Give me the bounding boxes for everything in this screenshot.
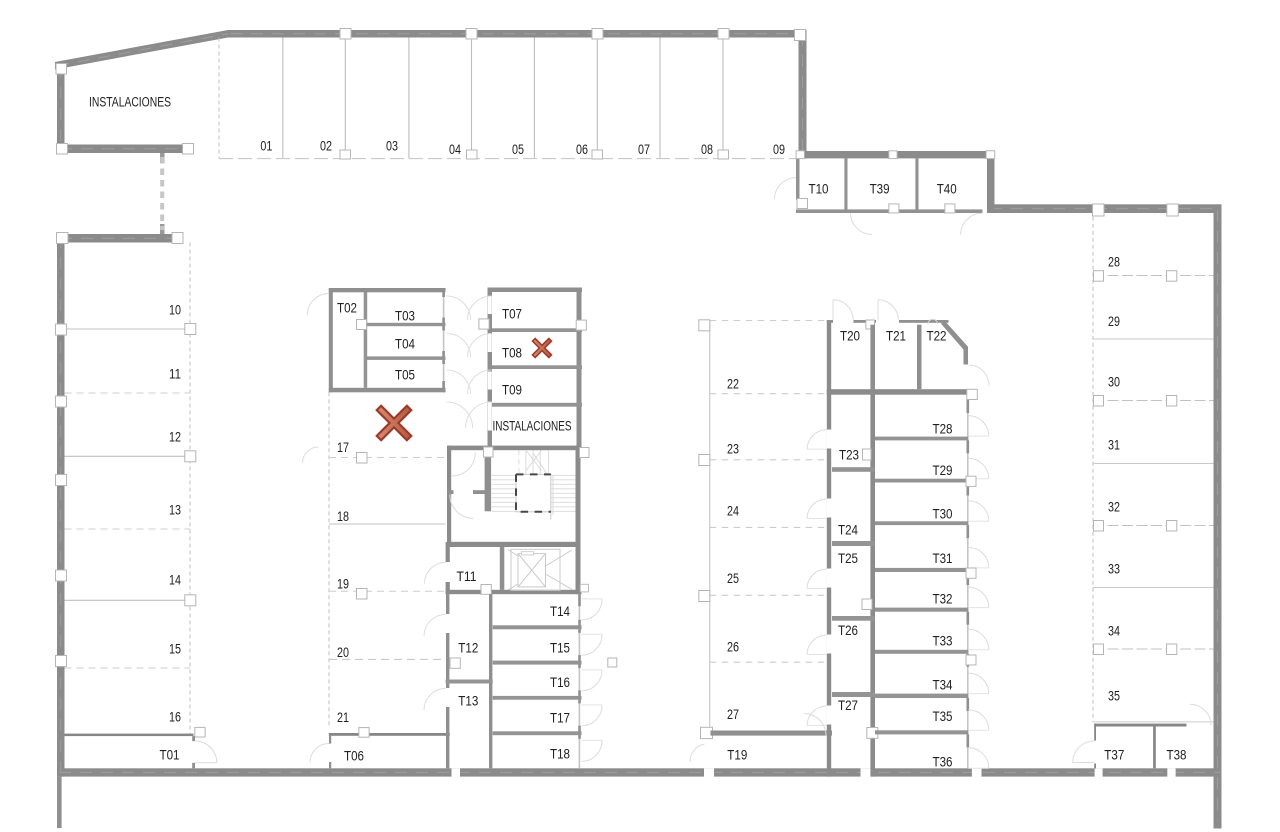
svg-text:T27: T27 xyxy=(838,698,858,713)
svg-text:11: 11 xyxy=(169,367,181,382)
svg-text:T16: T16 xyxy=(550,675,570,690)
svg-text:10: 10 xyxy=(169,303,181,318)
svg-text:21: 21 xyxy=(337,710,349,725)
svg-text:T04: T04 xyxy=(395,337,415,352)
svg-text:05: 05 xyxy=(512,142,524,157)
svg-text:T39: T39 xyxy=(870,182,890,197)
svg-text:09: 09 xyxy=(773,142,785,157)
svg-text:15: 15 xyxy=(169,642,181,657)
svg-text:T05: T05 xyxy=(395,368,415,383)
svg-text:12: 12 xyxy=(169,430,181,445)
svg-text:22: 22 xyxy=(727,377,739,392)
svg-text:28: 28 xyxy=(1108,255,1120,270)
svg-text:T34: T34 xyxy=(933,678,953,693)
svg-text:T03: T03 xyxy=(395,309,415,324)
svg-text:T19: T19 xyxy=(727,748,747,763)
svg-text:T38: T38 xyxy=(1167,748,1187,763)
svg-text:35: 35 xyxy=(1108,689,1120,704)
svg-text:T06: T06 xyxy=(344,749,364,764)
svg-text:T35: T35 xyxy=(933,709,953,724)
svg-text:T24: T24 xyxy=(838,522,858,537)
svg-text:T25: T25 xyxy=(838,551,858,566)
svg-text:T01: T01 xyxy=(160,748,180,763)
svg-text:T20: T20 xyxy=(840,328,860,343)
svg-text:T18: T18 xyxy=(550,747,570,762)
svg-text:T36: T36 xyxy=(933,755,953,770)
svg-text:T02: T02 xyxy=(337,301,357,316)
svg-text:T32: T32 xyxy=(933,591,953,606)
svg-text:T28: T28 xyxy=(933,422,953,437)
svg-text:T26: T26 xyxy=(838,623,858,638)
svg-text:T08: T08 xyxy=(502,346,522,361)
svg-text:30: 30 xyxy=(1108,375,1120,390)
svg-text:14: 14 xyxy=(169,573,181,588)
svg-text:T10: T10 xyxy=(809,182,829,197)
svg-text:20: 20 xyxy=(337,645,349,660)
svg-text:29: 29 xyxy=(1108,314,1120,329)
svg-text:32: 32 xyxy=(1108,500,1120,515)
svg-text:06: 06 xyxy=(576,142,588,157)
svg-text:31: 31 xyxy=(1108,437,1120,452)
svg-text:04: 04 xyxy=(449,142,461,157)
svg-text:T31: T31 xyxy=(933,551,953,566)
svg-text:T11: T11 xyxy=(457,569,477,584)
svg-text:T40: T40 xyxy=(937,182,957,197)
svg-text:03: 03 xyxy=(386,139,398,154)
svg-text:T37: T37 xyxy=(1104,748,1124,763)
svg-text:T22: T22 xyxy=(927,328,947,343)
svg-text:08: 08 xyxy=(701,142,713,157)
svg-text:16: 16 xyxy=(169,710,181,725)
svg-text:INSTALACIONES: INSTALACIONES xyxy=(493,419,572,434)
svg-text:34: 34 xyxy=(1108,623,1120,638)
svg-text:23: 23 xyxy=(727,441,739,456)
svg-text:01: 01 xyxy=(260,139,272,154)
svg-text:19: 19 xyxy=(337,577,349,592)
svg-text:T15: T15 xyxy=(550,641,570,656)
svg-text:T17: T17 xyxy=(550,711,570,726)
svg-text:T12: T12 xyxy=(458,641,478,656)
svg-text:T07: T07 xyxy=(502,307,522,322)
svg-text:25: 25 xyxy=(727,571,739,586)
svg-text:T14: T14 xyxy=(550,604,570,619)
svg-text:07: 07 xyxy=(638,142,650,157)
svg-text:T33: T33 xyxy=(933,634,953,649)
svg-text:T23: T23 xyxy=(839,447,859,462)
svg-text:T30: T30 xyxy=(933,507,953,522)
svg-text:T09: T09 xyxy=(502,383,522,398)
svg-text:T13: T13 xyxy=(458,694,478,709)
svg-text:17: 17 xyxy=(337,440,349,455)
svg-text:24: 24 xyxy=(727,504,739,519)
svg-text:13: 13 xyxy=(169,503,181,518)
svg-text:02: 02 xyxy=(320,139,332,154)
svg-text:33: 33 xyxy=(1108,562,1120,577)
svg-text:T21: T21 xyxy=(886,328,906,343)
svg-text:27: 27 xyxy=(727,707,739,722)
svg-text:INSTALACIONES: INSTALACIONES xyxy=(89,95,171,110)
svg-text:18: 18 xyxy=(337,509,349,524)
svg-text:T29: T29 xyxy=(933,463,953,478)
svg-text:26: 26 xyxy=(727,639,739,654)
